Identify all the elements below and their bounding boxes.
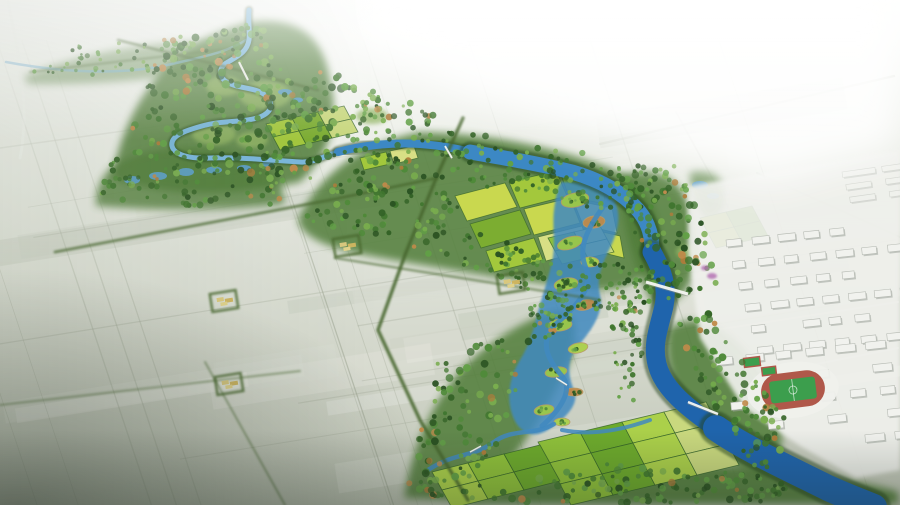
- vignette-bottom-left: [0, 0, 900, 505]
- aerial-scene: [0, 0, 900, 505]
- masterplan-rendering: [0, 0, 900, 505]
- shade-bottom-edge: [0, 430, 900, 505]
